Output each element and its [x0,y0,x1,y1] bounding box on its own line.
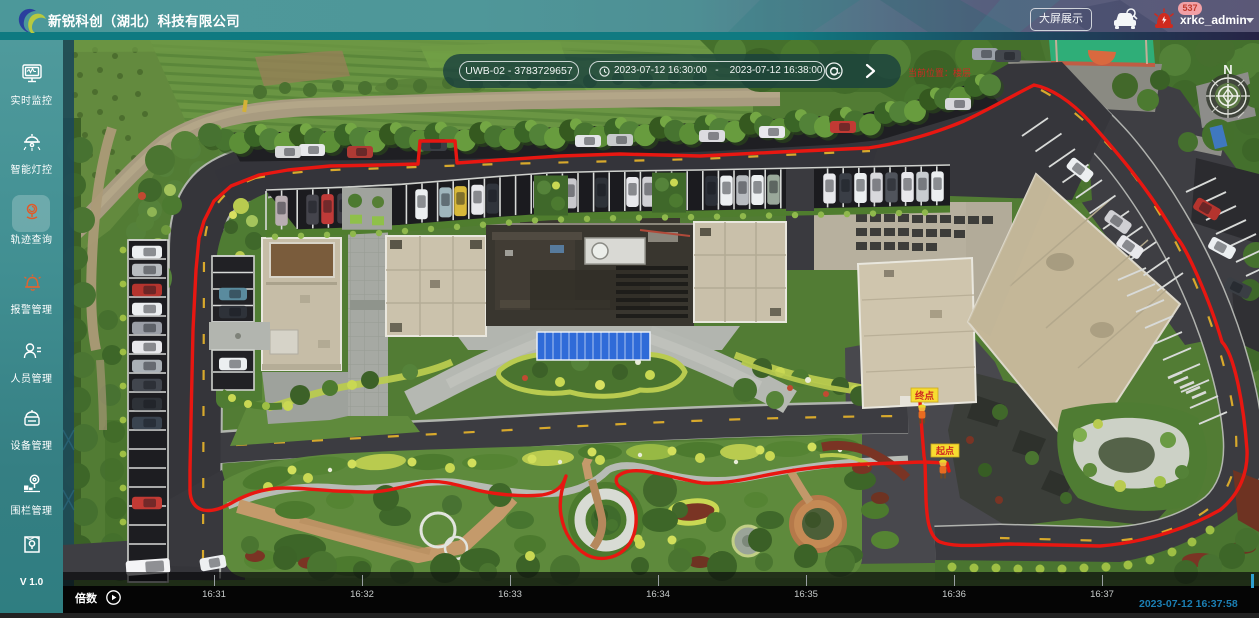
svg-text:当前位置：楼层: 当前位置：楼层 [908,67,971,78]
svg-text:起点: 起点 [935,445,954,456]
svg-text:终点: 终点 [914,390,935,402]
